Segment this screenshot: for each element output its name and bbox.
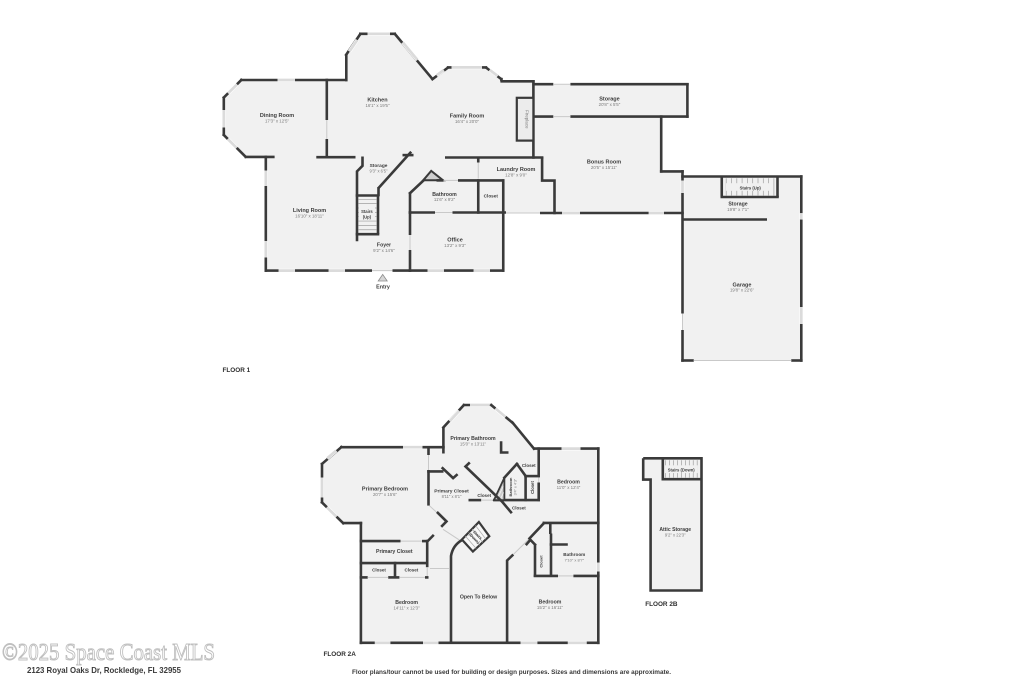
svg-text:Closet: Closet (512, 506, 526, 511)
svg-text:Fireplace: Fireplace (524, 110, 529, 129)
svg-text:Closet: Closet (530, 481, 535, 494)
svg-text:Closet: Closet (484, 194, 499, 199)
svg-text:13'2" x 9'3": 13'2" x 9'3" (444, 243, 466, 248)
svg-text:19'8" x 7'1": 19'8" x 7'1" (727, 207, 749, 212)
svg-text:Entry: Entry (376, 285, 390, 291)
svg-text:20'7" x 15'6": 20'7" x 15'6" (373, 492, 398, 497)
svg-text:11'0" x 12'4": 11'0" x 12'4" (557, 485, 581, 490)
svg-text:11'6" x 9'2": 11'6" x 9'2" (434, 197, 456, 202)
svg-text:9'3" x 6'5": 9'3" x 6'5" (370, 168, 388, 173)
svg-text:Floor plans/tour cannot be use: Floor plans/tour cannot be used for buil… (352, 669, 671, 676)
svg-text:FLOOR 1: FLOOR 1 (223, 367, 251, 374)
svg-text:15'2" x 16'11": 15'2" x 16'11" (537, 605, 564, 610)
svg-text:Closet: Closet (405, 568, 419, 573)
svg-text:16'1" x 19'5": 16'1" x 19'5" (365, 103, 390, 108)
svg-text:20'8" x 5'5": 20'8" x 5'5" (599, 102, 621, 107)
svg-text:FLOOR 2A: FLOOR 2A (324, 651, 357, 658)
svg-text:©2025 Space Coast MLS: ©2025 Space Coast MLS (2, 639, 215, 666)
svg-text:FLOOR 2B: FLOOR 2B (645, 601, 678, 608)
svg-text:8'11" x 8'1": 8'11" x 8'1" (442, 494, 462, 499)
svg-text:3'4" x 4'3": 3'4" x 4'3" (514, 478, 518, 495)
svg-text:16'10" x 18'11": 16'10" x 18'11" (295, 213, 324, 218)
svg-text:Bathroom: Bathroom (508, 477, 513, 496)
svg-text:Stairs (Up): Stairs (Up) (740, 186, 762, 191)
svg-text:15'0" x 13'11": 15'0" x 13'11" (460, 441, 487, 446)
svg-text:Closet: Closet (372, 568, 386, 573)
svg-text:9'2" x 14'6": 9'2" x 14'6" (373, 248, 395, 253)
svg-text:Primary Closet: Primary Closet (376, 549, 413, 555)
svg-text:Closet: Closet (477, 493, 491, 498)
svg-text:Open To Below: Open To Below (460, 595, 498, 601)
svg-text:9'2" x 22'3": 9'2" x 22'3" (665, 532, 686, 537)
svg-text:7'10" x 8'7": 7'10" x 8'7" (564, 557, 584, 562)
svg-text:Stairs (Down): Stairs (Down) (668, 468, 696, 473)
svg-text:(Up): (Up) (363, 214, 372, 219)
svg-text:2123 Royal Oaks Dr, Rockledge,: 2123 Royal Oaks Dr, Rockledge, FL 32955 (27, 665, 181, 675)
svg-text:Closet: Closet (539, 555, 544, 568)
svg-text:19'8" x 22'6": 19'8" x 22'6" (730, 288, 755, 293)
svg-text:Closet: Closet (522, 463, 536, 468)
svg-text:17'3" x 12'5": 17'3" x 12'5" (265, 118, 290, 123)
svg-text:20'5" x 15'11": 20'5" x 15'11" (591, 165, 618, 170)
svg-text:Bathroom: Bathroom (563, 552, 585, 557)
svg-text:16'4" x 20'0": 16'4" x 20'0" (455, 119, 480, 124)
svg-text:14'11" x 12'3": 14'11" x 12'3" (393, 605, 420, 610)
svg-text:12'8" x 9'0": 12'8" x 9'0" (505, 172, 527, 177)
